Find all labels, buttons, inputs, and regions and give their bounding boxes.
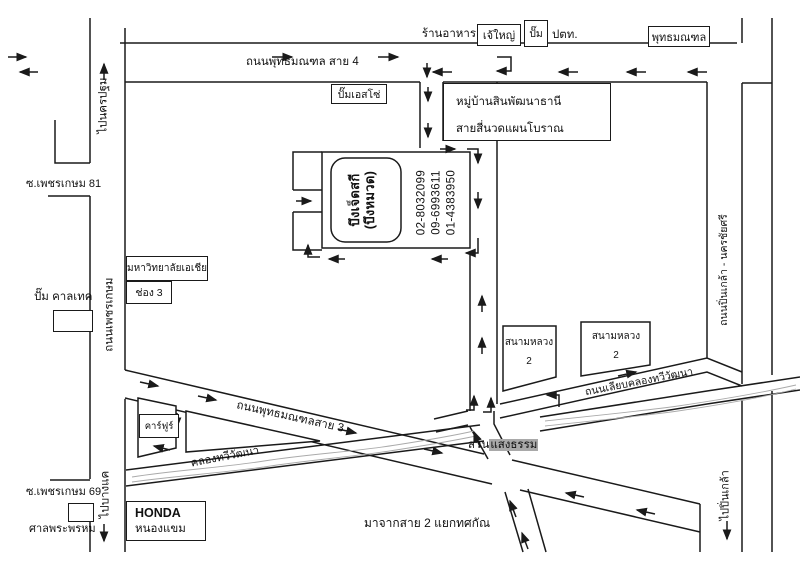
destination-phone-numbers: 02-8032099 09-6993611 01-4383950 [415, 157, 460, 249]
sanam-luang-a-label: สนามหลวง [494, 337, 564, 349]
phutthamonthon-box: พุทธมณฑล [648, 26, 710, 47]
destination-title-line2: (บึงหมวด) [363, 154, 378, 246]
carrefour-box: คาร์ฟูร์ [139, 414, 179, 438]
esso-pump-box: ปั๊มเอสโซ่ [331, 84, 387, 104]
road-label-soi81: ซ.เพชรเกษม 81 [26, 178, 101, 191]
restaurant-label: ร้านอาหาร [404, 28, 476, 41]
sanam-luang-b-label: สนามหลวง [581, 331, 651, 343]
hand-drawn-direction-map: ร้านอาหาร เจ้ใหญ่ ปั๊ม ปตท. พุทธมณฑล ถนน… [0, 0, 800, 566]
asia-university-box: มหาวิทยาลัยเอเชีย [126, 256, 208, 281]
honda-line1: HONDA [135, 506, 181, 520]
destination-title: บึงเจ็ดสกี (บึงหมวด) [348, 154, 384, 246]
village-line1: หมู่บ้านสินพัฒนาธานี [456, 93, 561, 111]
channel3-box: ช่อง 3 [126, 281, 172, 304]
road-label-from-sai2: มาจากสาย 2 แยกทศกัณ [364, 517, 490, 531]
sanam-luang-a-number: 2 [494, 356, 564, 368]
caltex-box [53, 310, 93, 332]
ptt-label: ปตท. [552, 29, 578, 42]
ptt-pump-box: ปั๊ม [524, 20, 548, 47]
phone-2: 09-6993611 [430, 157, 445, 249]
road-label-to-nakhon-pathom: ไปนครปฐม [97, 73, 110, 139]
map-linework [0, 0, 800, 566]
phone-3: 01-4383950 [445, 157, 460, 249]
caltex-label: ปั๊ม คาลเทค [34, 291, 92, 304]
suan-highlighted-part: แสงธรรม [489, 439, 538, 451]
road-label-pinklao: ถนนปิ่นเกล้า - นครชัยศรี [718, 204, 730, 336]
brahma-shrine-label: ศาลพระพรหม [29, 523, 96, 536]
village-line2: สายสี่นวดแผนโบราณ [456, 120, 564, 138]
road-label-to-bang-khae: ไปบางแค [99, 466, 112, 524]
honda-line2: หนองแขม [135, 520, 186, 538]
destination-title-line1: บึงเจ็ดสกี [348, 154, 363, 246]
road-label-soi69: ซ.เพชรเกษม 69 [26, 486, 101, 499]
sanam-luang-b-number: 2 [581, 350, 651, 362]
brahma-shrine-box [68, 503, 94, 522]
village-box: หมู่บ้านสินพัฒนาธานี สายสี่นวดแผนโบราณ [443, 83, 611, 141]
suan-saeng-tham-label: สวนแสงธรรม [468, 439, 538, 452]
road-label-sai4: ถนนพุทธมณฑล สาย 4 [246, 56, 359, 69]
road-label-phetkasem: ถนนเพชรเกษม [103, 271, 116, 359]
honda-box: HONDA หนองแขม [126, 501, 206, 541]
road-label-to-pinklao: ไปปิ่นเกล้า [720, 463, 733, 527]
suan-prefix: สวน [468, 439, 489, 451]
phone-1: 02-8032099 [415, 157, 430, 249]
jaeyai-restaurant-box: เจ้ใหญ่ [477, 24, 521, 46]
